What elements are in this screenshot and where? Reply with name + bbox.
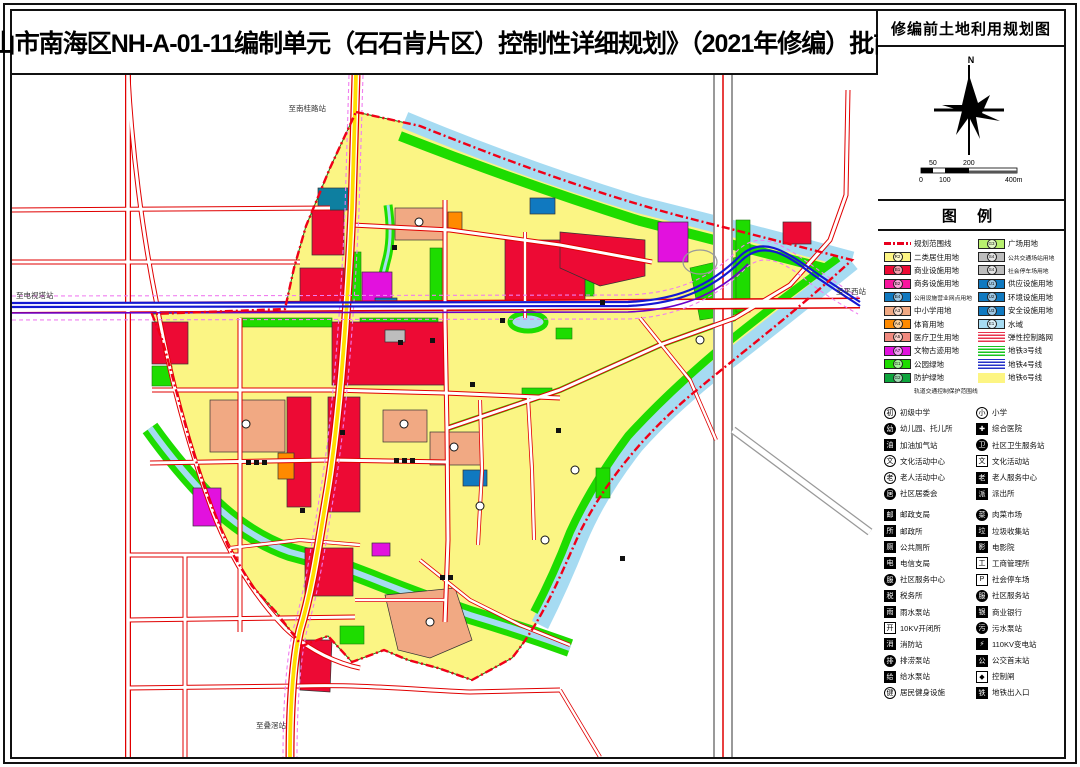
scale-bar: 50 200 0 100 400m xyxy=(919,160,1023,184)
legend-zoning-item: G2防护绿地 xyxy=(884,371,978,384)
legend-circle-icon: 老 xyxy=(884,472,896,484)
title-bar: 《佛山市南海区NH-A-01-11编制单元（石石肯片区）控制性详细规划》（202… xyxy=(12,11,878,75)
icon-label: 邮政支局 xyxy=(900,509,930,520)
legend-zoning-item: G3广场用地 xyxy=(978,237,1060,250)
zoning-label: 公用设施营业网点用地 xyxy=(914,293,972,302)
legend-square-solid-icon: 邮 xyxy=(884,509,896,521)
legend-icon-item: 文文化活动站 xyxy=(976,453,1060,469)
svg-text:0: 0 xyxy=(919,177,923,184)
label-east-station: 至平西站 xyxy=(836,286,866,296)
icon-label: 工商管理所 xyxy=(992,558,1030,569)
pond xyxy=(510,313,546,331)
legend-zoning-item: B4公用设施营业网点用地 xyxy=(884,291,978,304)
zoning-label: 文物古迹用地 xyxy=(914,345,959,356)
icon-label: 小学 xyxy=(992,407,1007,418)
zoning-swatch: A3 xyxy=(884,306,911,316)
legend-icon-item: ◆控制闸 xyxy=(976,669,1060,685)
legend-icon-item: 消消防站 xyxy=(884,636,976,652)
legend-zoning-item: 轨道交通控制保护范围线 xyxy=(884,384,978,397)
zoning-code: G1 xyxy=(893,359,903,369)
legend-icon-item: 开10KV开闭所 xyxy=(884,620,976,636)
zoning-label: 体育用地 xyxy=(914,319,944,330)
zoning-label: 环境设施用地 xyxy=(1008,292,1053,303)
zoning-label: 水域 xyxy=(1008,319,1023,330)
icon-label: 社区服务中心 xyxy=(900,574,945,585)
icon-label: 文化活动站 xyxy=(992,456,1030,467)
zoning-code: B4 xyxy=(893,292,903,302)
legend-zoning-item: R2二类居住用地 xyxy=(884,250,978,263)
svg-text:200: 200 xyxy=(963,160,975,167)
legend-icon-item: 铁地铁出入口 xyxy=(976,685,1060,701)
legend-icon-item: 健居民健身设施 xyxy=(884,685,976,701)
legend-square-solid-icon: ⚡ xyxy=(976,638,988,650)
legend-circle-solid-icon: 排 xyxy=(884,655,896,667)
icon-label: 消防站 xyxy=(900,639,923,650)
page-title: 《佛山市南海区NH-A-01-11编制单元（石石肯片区）控制性详细规划》（202… xyxy=(0,24,945,60)
legend-icon-item: 老老人活动中心 xyxy=(884,469,976,485)
legend-square-solid-icon: 银 xyxy=(976,606,988,618)
zoning-code: R2 xyxy=(893,252,903,262)
legend-zoning-item: 地铁4号线 xyxy=(978,358,1060,371)
legend-icon-item: 排排涝泵站 xyxy=(884,653,976,669)
zoning-label: 二类居住用地 xyxy=(914,252,959,263)
legend-icon-item: 厕公共厕所 xyxy=(884,539,976,555)
legend-icon-item: 给给水泵站 xyxy=(884,669,976,685)
stripe-green-swatch xyxy=(978,346,1005,356)
legend-square-icon: ◆ xyxy=(976,671,988,683)
legend-icon-item: 小小学 xyxy=(976,405,1060,421)
legend-zoning-item: A3中小学用地 xyxy=(884,304,978,317)
zoning-swatch: B1 xyxy=(884,265,911,275)
svg-text:50: 50 xyxy=(929,160,937,167)
icon-label: 电信支局 xyxy=(900,558,930,569)
legend-circle-icon: 健 xyxy=(884,687,896,699)
legend-circle-icon: 小 xyxy=(976,407,988,419)
legend-zoning-item: B1商业设施用地 xyxy=(884,264,978,277)
legend-icon-item: 垃垃圾收集站 xyxy=(976,523,1060,539)
zoning-label: 安全设施用地 xyxy=(1008,305,1053,316)
compass-rose: 50 200 0 100 400m xyxy=(878,47,1060,197)
zoning-label: 弹性控制路网 xyxy=(1008,332,1053,343)
icon-label: 肉菜市场 xyxy=(992,509,1022,520)
legend-icon-item: 邮邮政支局 xyxy=(884,507,976,523)
icon-label: 污水泵站 xyxy=(992,623,1022,634)
hatch-red-swatch xyxy=(978,332,1005,342)
planning-notice-page: { "page": { "title": "《佛山市南海区NH-A-01-11编… xyxy=(0,0,1080,767)
legend-zoning-item: A4体育用地 xyxy=(884,317,978,330)
zoning-code: B2 xyxy=(893,279,903,289)
compass-panel: N 50 200 0 100 400m xyxy=(878,47,1064,201)
zoning-code: G3 xyxy=(987,239,997,249)
legend-icons-right: 小小学✚综合医院卫社区卫生服务站文文化活动站老老人服务中心派派出所菜肉菜市场垃垃… xyxy=(976,405,1060,701)
legend-zoning-item: G1公园绿地 xyxy=(884,358,978,371)
icon-label: 老人活动中心 xyxy=(900,472,945,483)
legend-icon-item: 初初级中学 xyxy=(884,405,976,421)
legend-square-solid-icon: 雨 xyxy=(884,606,896,618)
legend-zoning-item: S4公共交通场站用地 xyxy=(978,250,1060,263)
icon-label: 排涝泵站 xyxy=(900,655,930,666)
legend-icon-item: 派派出所 xyxy=(976,486,1060,502)
line-red-dash-swatch xyxy=(884,242,911,245)
zoning-swatch: U3 xyxy=(978,306,1005,316)
icon-label: 社区服务站 xyxy=(992,590,1030,601)
legend-icon-item: 油加油加气站 xyxy=(884,437,976,453)
legend-icon-item: ⚡110KV变电站 xyxy=(976,636,1060,652)
legend-icon-item: 服社区服务站 xyxy=(976,588,1060,604)
icon-label: 公共厕所 xyxy=(900,542,930,553)
zoning-code: A3 xyxy=(893,306,903,316)
legend-circle-solid-icon: 幼 xyxy=(884,423,896,435)
legend-circle-solid-icon: 居 xyxy=(884,488,896,500)
zoning-swatch: E1 xyxy=(978,319,1005,329)
legend-zoning-item: B2商务设施用地 xyxy=(884,277,978,290)
icon-label: 雨水泵站 xyxy=(900,607,930,618)
icon-label: 幼儿园、托儿所 xyxy=(900,423,953,434)
line-pink-dash-swatch xyxy=(884,387,911,394)
legend-zoning-item: A5医疗卫生用地 xyxy=(884,331,978,344)
legend-icon-item: 电电信支局 xyxy=(884,555,976,571)
legend-icon-item: ✚综合医院 xyxy=(976,421,1060,437)
legend-zoning-item: U1供应设施用地 xyxy=(978,277,1060,290)
icon-label: 电影院 xyxy=(992,542,1015,553)
legend-zoning-item: U3安全设施用地 xyxy=(978,304,1060,317)
icon-label: 控制闸 xyxy=(992,671,1015,682)
legend-icons-left: 初初级中学幼幼儿园、托儿所油加油加气站文文化活动中心老老人活动中心居社区居委会邮… xyxy=(884,405,976,701)
legend-zoning-item: U2环境设施用地 xyxy=(978,291,1060,304)
legend-zoning-right: G3广场用地S4公共交通场站用地S4社会停车场用地U1供应设施用地U2环境设施用… xyxy=(978,237,1060,398)
legend-square-solid-icon: 派 xyxy=(976,488,988,500)
icon-label: 10KV开闭所 xyxy=(900,623,941,634)
zoning-swatch: B4 xyxy=(884,292,911,302)
stripe-blue-swatch xyxy=(978,359,1005,369)
zoning-label: 防护绿地 xyxy=(914,372,944,383)
icon-label: 老人服务中心 xyxy=(992,472,1037,483)
zoning-label: 地铁4号线 xyxy=(1008,359,1042,370)
legend-icon-item: 银商业银行 xyxy=(976,604,1060,620)
zoning-swatch: A7 xyxy=(884,346,911,356)
legend-icon-item: 居社区居委会 xyxy=(884,486,976,502)
legend-icon-item: 服社区服务中心 xyxy=(884,572,976,588)
zoning-swatch: B2 xyxy=(884,279,911,289)
zoning-label: 公园绿地 xyxy=(914,359,944,370)
legend-panel: 规划范围线R2二类居住用地B1商业设施用地B2商务设施用地B4公用设施营业网点用… xyxy=(878,231,1064,701)
legend-square-solid-icon: 油 xyxy=(884,439,896,451)
zoning-label: 社会停车场用地 xyxy=(1008,266,1049,275)
icon-label: 派出所 xyxy=(992,488,1015,499)
icon-label: 社会停车场 xyxy=(992,574,1030,585)
zoning-swatch: S4 xyxy=(978,252,1005,262)
zoning-code: S4 xyxy=(987,265,997,275)
legend-icon-item: 雨雨水泵站 xyxy=(884,604,976,620)
zoning-label: 广场用地 xyxy=(1008,238,1038,249)
legend-square-icon: 文 xyxy=(976,455,988,467)
zoning-swatch: G2 xyxy=(884,373,911,383)
legend-square-solid-icon: 垃 xyxy=(976,525,988,537)
zoning-label: 商业设施用地 xyxy=(914,265,959,276)
legend-square-solid-icon: 厕 xyxy=(884,541,896,553)
zoning-swatch: A5 xyxy=(884,332,911,342)
icon-label: 文化活动中心 xyxy=(900,456,945,467)
legend-square-solid-icon: 给 xyxy=(884,671,896,683)
legend-square-solid-icon: ✚ xyxy=(976,423,988,435)
zoning-code: E1 xyxy=(987,319,997,329)
legend-circle-solid-icon: 污 xyxy=(976,622,988,634)
legend-square-solid-icon: 所 xyxy=(884,525,896,537)
legend-zoning-item: S4社会停车场用地 xyxy=(978,264,1060,277)
zoning-label: 规划范围线 xyxy=(914,238,952,249)
legend-zoning-item: 规划范围线 xyxy=(884,237,978,250)
zoning-code: U3 xyxy=(987,306,997,316)
legend-zoning-item: 地铁3号线 xyxy=(978,344,1060,357)
label-west-station: 至电视塔站 xyxy=(16,290,54,300)
zoning-code: U1 xyxy=(987,279,997,289)
icon-label: 税务所 xyxy=(900,590,923,601)
icon-label: 地铁出入口 xyxy=(992,687,1030,698)
zoning-code: B1 xyxy=(893,265,903,275)
zoning-label: 供应设施用地 xyxy=(1008,278,1053,289)
icon-label: 社区卫生服务站 xyxy=(992,440,1045,451)
zoning-code: A4 xyxy=(893,319,903,329)
sidebar: 修编前土地利用规划图 N 50 200 0 100 400m 图 例 规划范围线… xyxy=(878,11,1064,757)
zoning-swatch: G3 xyxy=(978,239,1005,249)
legend-icon-item: 税税务所 xyxy=(884,588,976,604)
zoning-swatch: A4 xyxy=(884,319,911,329)
legend-icon-item: 老老人服务中心 xyxy=(976,469,1060,485)
legend-square-solid-icon: 税 xyxy=(884,590,896,602)
icon-label: 社区居委会 xyxy=(900,488,938,499)
legend-square-solid-icon: 老 xyxy=(976,472,988,484)
legend-icon-item: P社会停车场 xyxy=(976,572,1060,588)
legend-icon-item: 幼幼儿园、托儿所 xyxy=(884,421,976,437)
zoning-swatch: U2 xyxy=(978,292,1005,302)
svg-text:100: 100 xyxy=(939,177,951,184)
zoning-code: S4 xyxy=(987,252,997,262)
zoning-label: 中小学用地 xyxy=(914,305,952,316)
legend-icon-item: 文文化活动中心 xyxy=(884,453,976,469)
icon-label: 公交首末站 xyxy=(992,655,1030,666)
legend-circle-solid-icon: 菜 xyxy=(976,509,988,521)
fill-yellow-swatch xyxy=(978,373,1005,383)
zoning-label: 地铁3号线 xyxy=(1008,345,1042,356)
legend-icon-item: 污污水泵站 xyxy=(976,620,1060,636)
legend-circle-solid-icon: 服 xyxy=(884,574,896,586)
legend-square-icon: P xyxy=(976,574,988,586)
zoning-label: 医疗卫生用地 xyxy=(914,332,959,343)
label-north-station: 至南桂路站 xyxy=(289,103,327,113)
zoning-label: 地铁6号线 xyxy=(1008,372,1042,383)
legend-icon-item: 公公交首末站 xyxy=(976,653,1060,669)
legend-title: 图 例 xyxy=(878,201,1064,231)
legend-zoning-item: E1水域 xyxy=(978,317,1060,330)
zoning-swatch: R2 xyxy=(884,252,911,262)
label-south-station: 至叠滘站 xyxy=(256,720,286,730)
legend-square-solid-icon: 公 xyxy=(976,655,988,667)
legend-square-solid-icon: 铁 xyxy=(976,687,988,699)
icon-label: 邮政所 xyxy=(900,526,923,537)
zoning-swatch: S4 xyxy=(978,265,1005,275)
icon-label: 给水泵站 xyxy=(900,671,930,682)
icon-label: 加油加气站 xyxy=(900,440,938,451)
planning-map: 至南桂路站 至电视塔站 至平西站 至叠滘站 xyxy=(12,75,878,757)
zoning-label: 轨道交通控制保护范围线 xyxy=(914,386,978,395)
legend-zoning-item: 地铁6号线 xyxy=(978,371,1060,384)
legend-icon-item: 所邮政所 xyxy=(884,523,976,539)
icon-label: 110KV变电站 xyxy=(992,639,1036,650)
legend-icon-item: 影电影院 xyxy=(976,539,1060,555)
legend-icon-item: 工工商管理所 xyxy=(976,555,1060,571)
zoning-swatch: U1 xyxy=(978,279,1005,289)
legend-icon-item: 菜肉菜市场 xyxy=(976,507,1060,523)
legend-zoning-item: A7文物古迹用地 xyxy=(884,344,978,357)
zoning-code: A5 xyxy=(893,332,903,342)
compass-north-label: N xyxy=(968,55,975,65)
legend-square-solid-icon: 影 xyxy=(976,541,988,553)
legend-square-solid-icon: 消 xyxy=(884,638,896,650)
zoning-code: G2 xyxy=(893,373,903,383)
legend-square-icon: 开 xyxy=(884,622,896,634)
legend-zoning-left: 规划范围线R2二类居住用地B1商业设施用地B2商务设施用地B4公用设施营业网点用… xyxy=(884,237,978,398)
zoning-label: 公共交通场站用地 xyxy=(1008,253,1054,262)
icon-label: 初级中学 xyxy=(900,407,930,418)
legend-zoning-item: 弹性控制路网 xyxy=(978,331,1060,344)
zoning-code: A7 xyxy=(893,346,903,356)
legend-square-icon: 工 xyxy=(976,557,988,569)
map-canvas: 至南桂路站 至电视塔站 至平西站 至叠滘站 xyxy=(12,75,878,757)
legend-icon-item: 卫社区卫生服务站 xyxy=(976,437,1060,453)
legend-circle-icon: 文 xyxy=(884,455,896,467)
zoning-swatch: G1 xyxy=(884,359,911,369)
svg-text:400m: 400m xyxy=(1005,177,1023,184)
legend-square-solid-icon: 电 xyxy=(884,557,896,569)
legend-circle-icon: 初 xyxy=(884,407,896,419)
icon-label: 居民健身设施 xyxy=(900,687,945,698)
zoning-label: 商务设施用地 xyxy=(914,278,959,289)
legend-circle-solid-icon: 服 xyxy=(976,590,988,602)
icon-label: 商业银行 xyxy=(992,607,1022,618)
zoning-code: U2 xyxy=(987,292,997,302)
sidebar-map-title: 修编前土地利用规划图 xyxy=(878,11,1064,47)
icon-label: 垃圾收集站 xyxy=(992,526,1030,537)
icon-label: 综合医院 xyxy=(992,423,1022,434)
legend-circle-solid-icon: 卫 xyxy=(976,439,988,451)
